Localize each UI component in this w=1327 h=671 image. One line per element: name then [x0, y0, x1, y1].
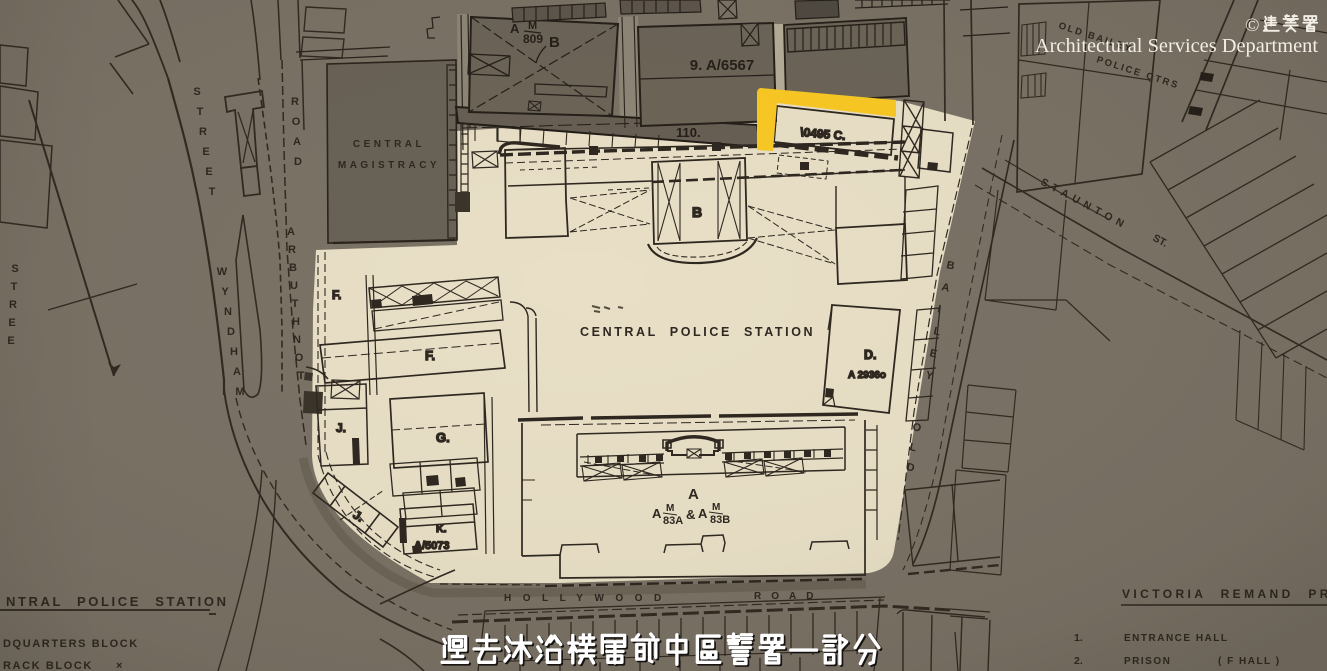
svg-text:©: ©: [1245, 15, 1259, 36]
svg-text:Architectural Services Departm: Architectural Services Department: [1035, 35, 1318, 57]
